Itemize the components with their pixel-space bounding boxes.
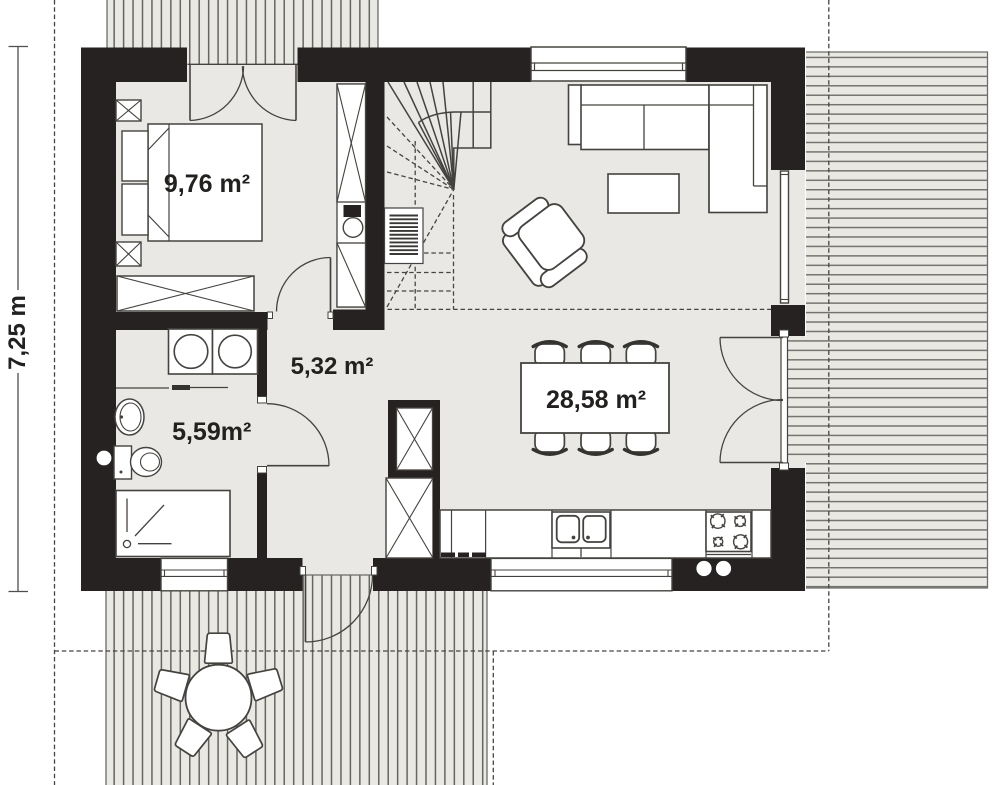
svg-text:7,25 m: 7,25 m [4, 295, 31, 370]
svg-text:28,58 m²: 28,58 m² [546, 386, 646, 414]
svg-text:5,32 m²: 5,32 m² [291, 353, 374, 380]
svg-text:5,59m²: 5,59m² [172, 418, 251, 446]
svg-text:9,76 m²: 9,76 m² [164, 170, 250, 198]
